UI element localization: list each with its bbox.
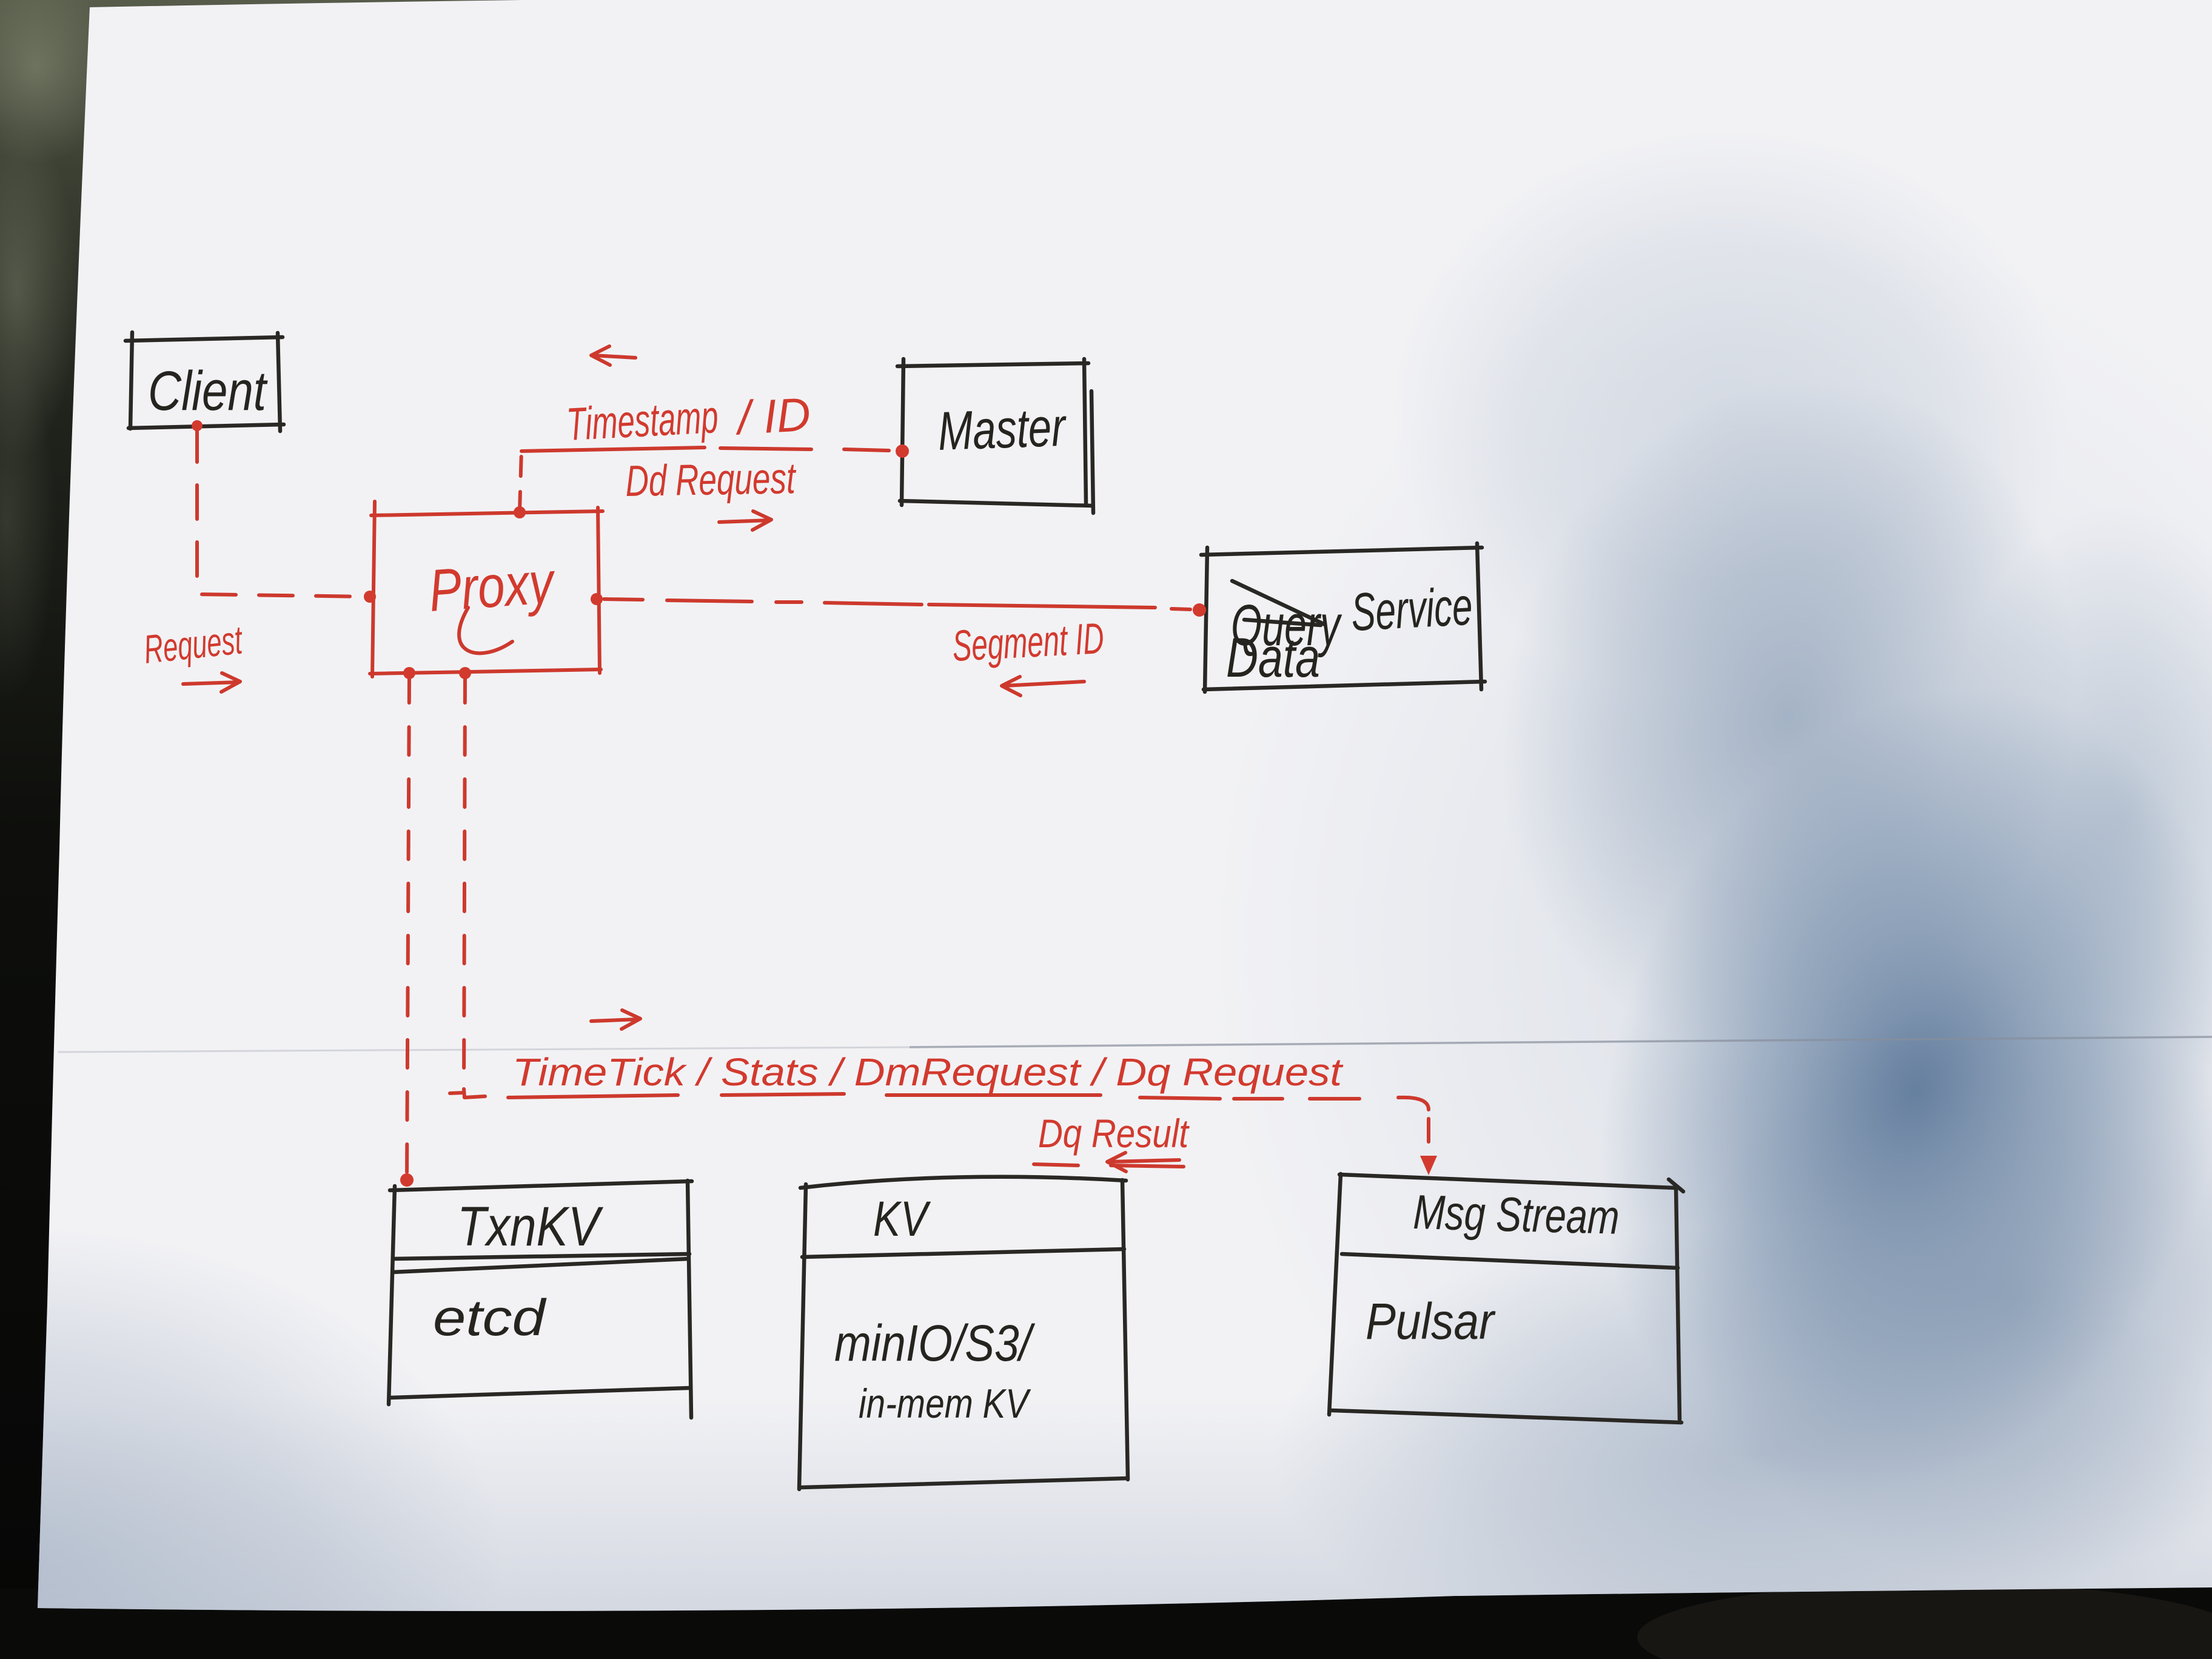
svg-text:minIO/S3/: minIO/S3/ <box>834 1315 1036 1372</box>
svg-text:TxnKV: TxnKV <box>457 1196 603 1258</box>
svg-text:Pulsar: Pulsar <box>1366 1293 1496 1350</box>
svg-text:Service: Service <box>1350 576 1474 642</box>
svg-text:in-mem KV: in-mem KV <box>859 1381 1031 1427</box>
svg-text:Dq Result: Dq Result <box>1038 1111 1190 1156</box>
svg-text:KV: KV <box>873 1191 931 1247</box>
svg-text:Client: Client <box>148 360 268 422</box>
svg-text:TimeTick / Stats / DmRequest /: TimeTick / Stats / DmRequest / Dq Reques… <box>512 1050 1343 1094</box>
svg-text:Segment ID: Segment ID <box>951 614 1105 671</box>
svg-text:Msg Stream: Msg Stream <box>1413 1185 1620 1244</box>
svg-text:Master: Master <box>937 397 1068 462</box>
svg-text:etcd: etcd <box>433 1289 547 1346</box>
svg-text:Timestamp: Timestamp <box>565 391 719 451</box>
svg-text:/ ID: / ID <box>733 387 811 444</box>
svg-text:Dd Request: Dd Request <box>625 454 797 506</box>
svg-text:Proxy: Proxy <box>427 549 558 624</box>
svg-text:Data: Data <box>1226 627 1320 689</box>
